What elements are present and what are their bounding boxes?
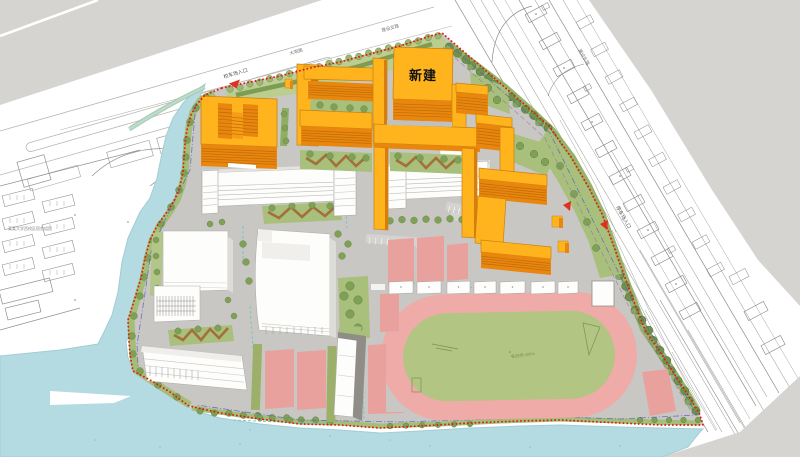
svg-text:某某大学西校区宿舍组团: 某某大学西校区宿舍组团 [8, 225, 52, 231]
svg-text:新建: 新建 [409, 68, 437, 83]
